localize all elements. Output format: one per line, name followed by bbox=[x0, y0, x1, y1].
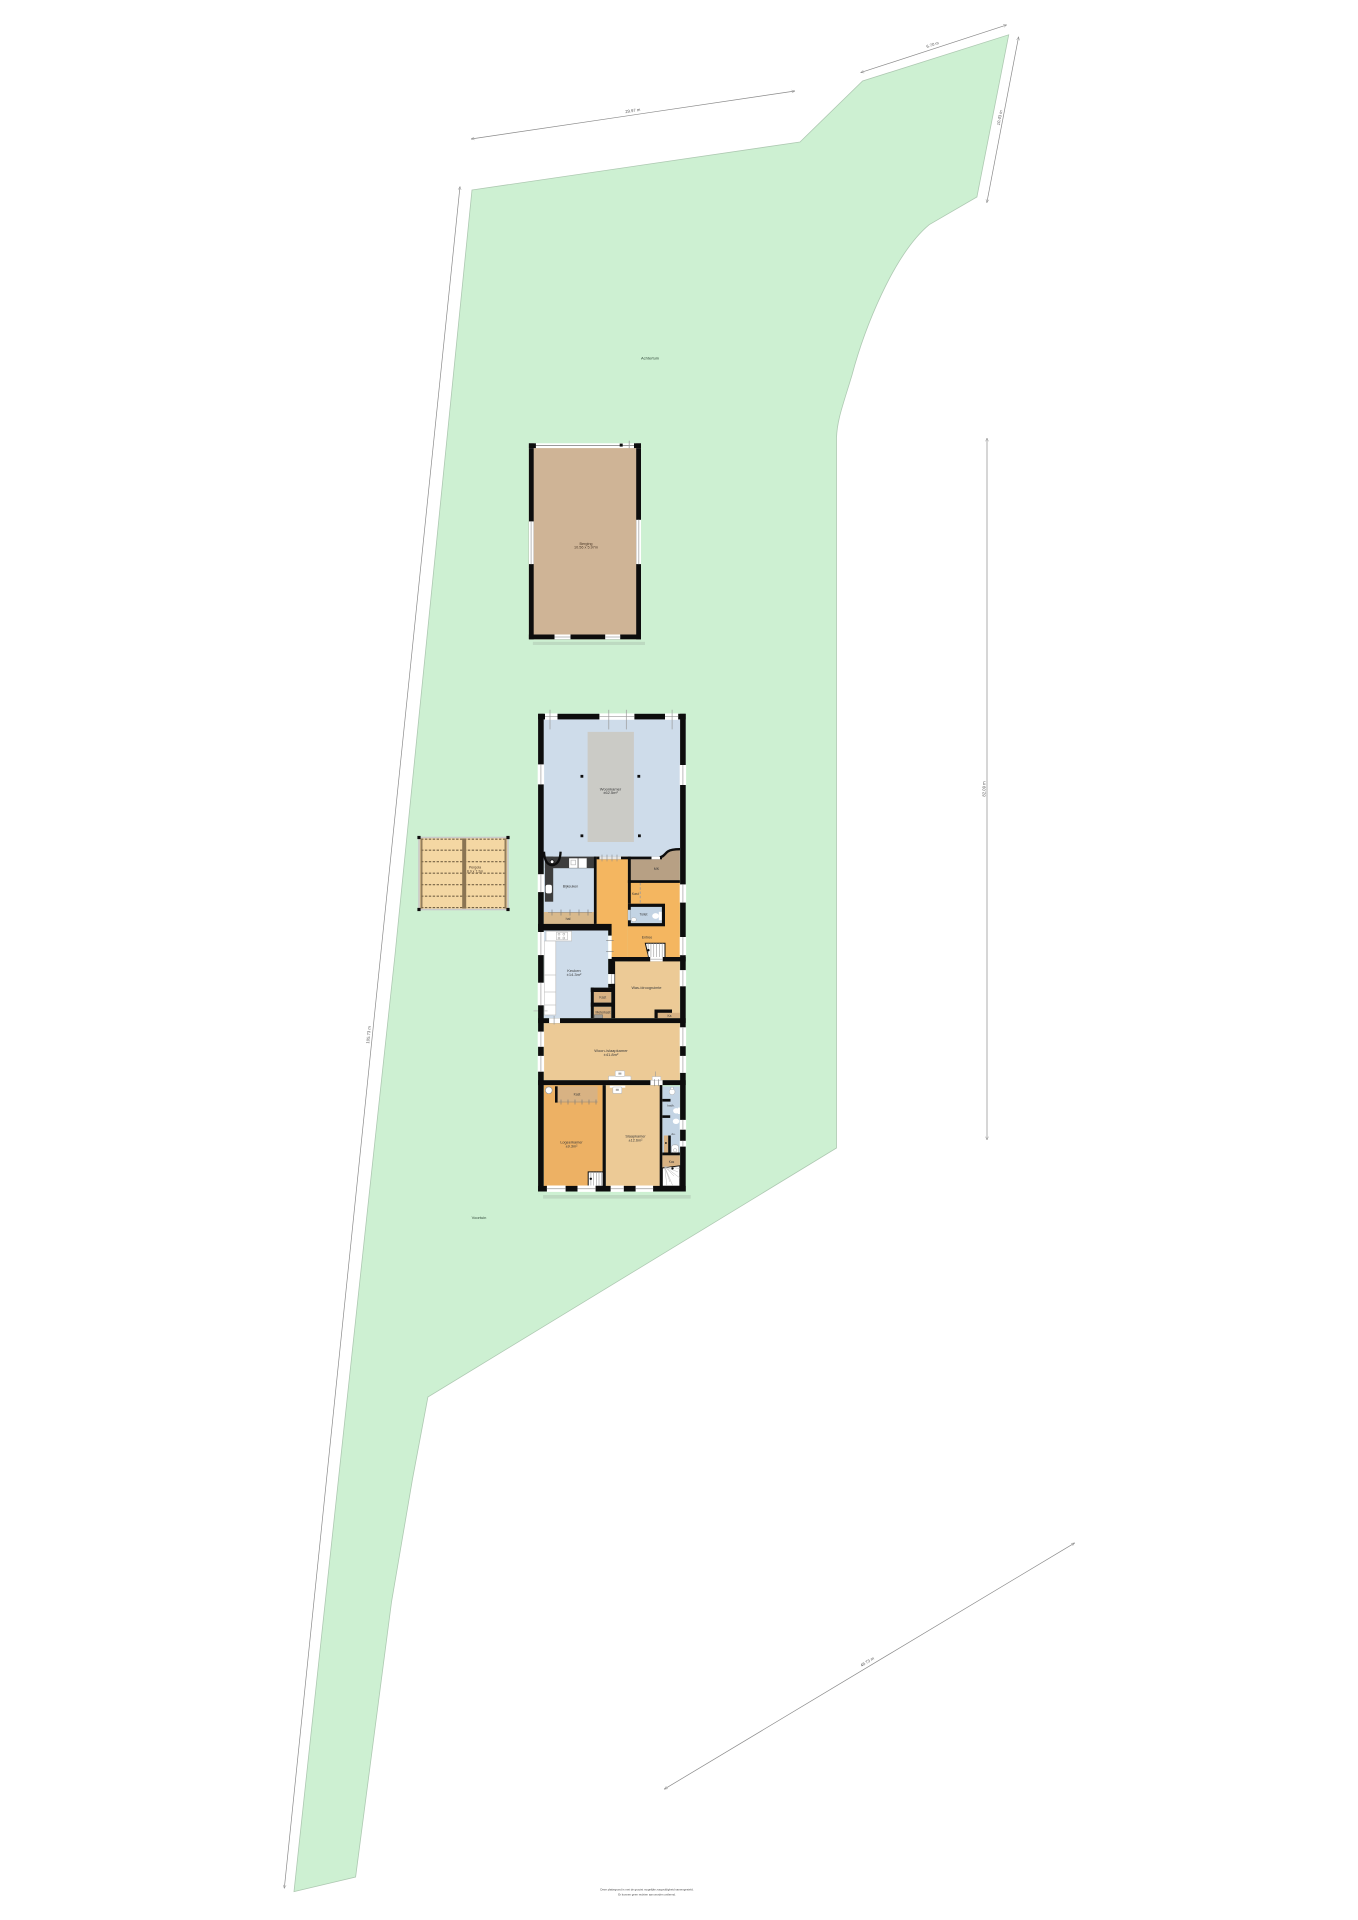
svg-text:Er kunnen geen rechten aan wor: Er kunnen geen rechten aan worden ontlee… bbox=[618, 1892, 676, 1896]
svg-text:8.9 x 7.2m: 8.9 x 7.2m bbox=[467, 869, 483, 873]
svg-text:Achtertuin: Achtertuin bbox=[641, 356, 659, 361]
svg-text:105.73 m: 105.73 m bbox=[365, 1025, 372, 1043]
svg-text:10.56 x 5.97m: 10.56 x 5.97m bbox=[574, 545, 598, 549]
svg-text:Kas: Kas bbox=[669, 1160, 675, 1164]
svg-text:Voortuin: Voortuin bbox=[472, 1215, 487, 1220]
svg-text:badk.: badk. bbox=[667, 1104, 675, 1108]
svg-text:29.97 m: 29.97 m bbox=[625, 107, 641, 114]
svg-text:Entree: Entree bbox=[642, 936, 653, 940]
svg-text:Deze plattegrond is met de gro: Deze plattegrond is met de grootst mogel… bbox=[600, 1888, 693, 1892]
svg-text:±62.5m²: ±62.5m² bbox=[603, 790, 618, 795]
svg-text:Kast: Kast bbox=[599, 996, 606, 1000]
svg-text:±9.3m²: ±9.3m² bbox=[566, 1144, 579, 1148]
svg-text:Meterkast: Meterkast bbox=[596, 1011, 611, 1015]
svg-text:hal: hal bbox=[566, 917, 571, 921]
svg-text:82.09 m: 82.09 m bbox=[982, 781, 987, 797]
svg-text:±41.8m²: ±41.8m² bbox=[604, 1052, 619, 1057]
svg-text:Bijkeuken: Bijkeuken bbox=[563, 885, 579, 889]
svg-text:Ka: Ka bbox=[668, 1014, 672, 1018]
svg-text:48.73 m: 48.73 m bbox=[859, 1655, 875, 1667]
svg-text:MK: MK bbox=[654, 867, 660, 871]
svg-text:Kast: Kast bbox=[574, 1093, 581, 1097]
svg-text:do.: do. bbox=[671, 1132, 675, 1136]
svg-text:Toilet: Toilet bbox=[640, 913, 648, 917]
svg-text:±12.6m²: ±12.6m² bbox=[629, 1138, 644, 1142]
svg-text:Kast: Kast bbox=[632, 892, 639, 896]
svg-text:Was-/droogruimte: Was-/droogruimte bbox=[631, 986, 661, 990]
svg-text:±14.3m²: ±14.3m² bbox=[567, 972, 582, 977]
